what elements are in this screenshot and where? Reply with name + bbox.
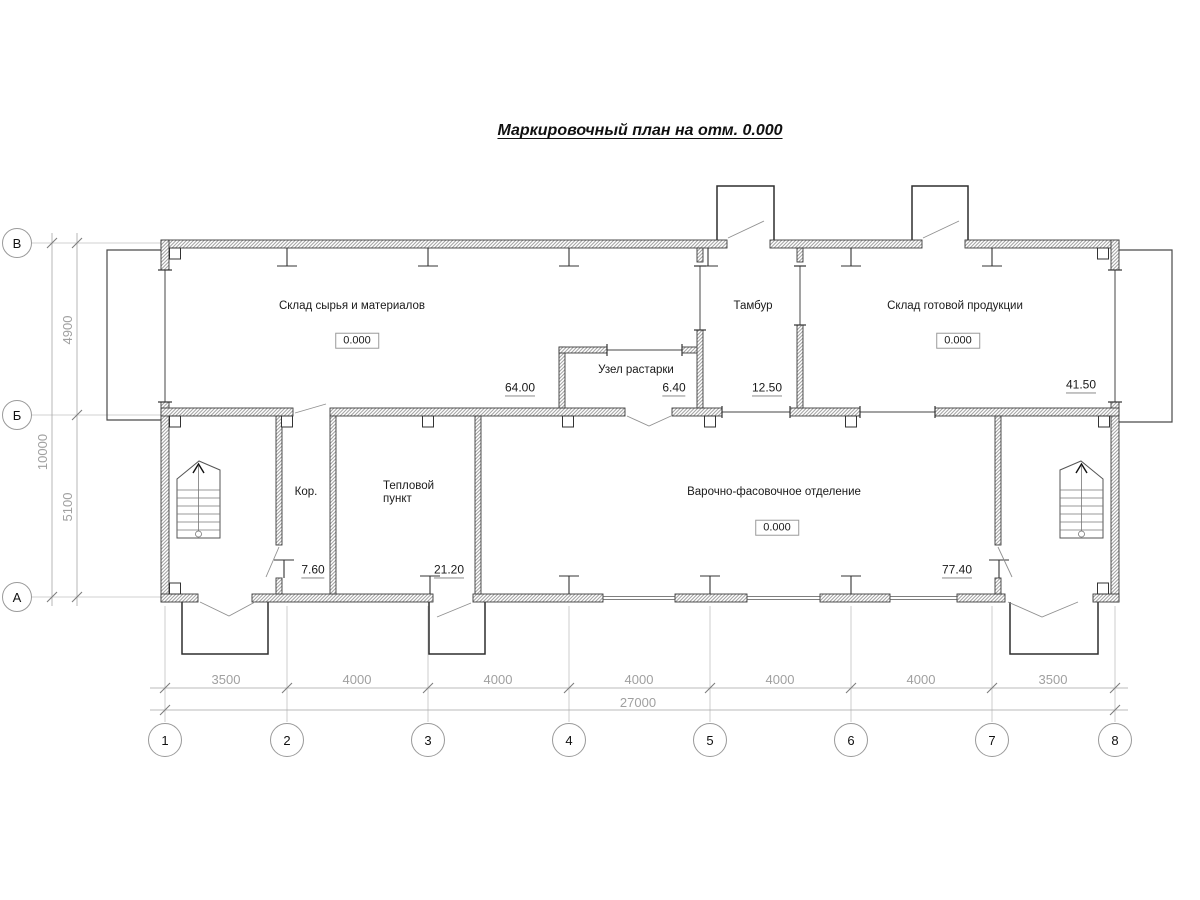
axis-col-6: 6 [834,723,868,757]
area-label-tambur: 12.50 [752,381,782,394]
axis-col-2: 2 [270,723,304,757]
axis-col-5: 5 [693,723,727,757]
dim-bottom-seg-2: 4000 [343,673,372,687]
axis-col-1: 1 [148,723,182,757]
dim-bottom-seg-3: 4000 [484,673,513,687]
axis-col-4: 4 [552,723,586,757]
stair-left [177,461,220,538]
dim-left-total: 10000 [36,434,50,470]
dim-left-4900: 4900 [61,316,75,345]
area-label-sklad-syrya: 64.00 [505,381,535,394]
drawing-canvas: Маркировочный план на отм. 0.000 Склад с… [0,0,1200,900]
porches [182,186,1098,654]
axis-col-3: 3 [411,723,445,757]
windows [603,597,957,600]
extension-lines [31,243,1115,722]
elevation-mark-sklad-syrya: 0.000 [335,335,379,348]
room-label-varochnoe: Варочно-фасовочное отделение [687,486,861,498]
axis-row-B: Б [2,400,32,430]
area-label-sklad-gotovoy: 41.50 [1066,378,1096,391]
axis-row-V: В [2,228,32,258]
elevation-mark-varochnoe: 0.000 [755,522,799,535]
elevation-mark-sklad-gotovoy: 0.000 [936,335,980,348]
area-label-uzel-rastarki: 6.40 [662,381,685,394]
drawing-title: Маркировочный план на отм. 0.000 [497,122,782,140]
dim-bottom-seg-6: 4000 [907,673,936,687]
dim-bottom-seg-1: 3500 [212,673,241,687]
room-label-tambur: Тамбур [733,300,772,312]
axis-col-7: 7 [975,723,1009,757]
dim-left-5100: 5100 [61,493,75,522]
room-label-koridor: Кор. [295,486,318,498]
dim-bottom-seg-7: 3500 [1039,673,1068,687]
room-label-teplopunkt: Тепловой пункт [383,480,449,505]
area-label-koridor: 7.60 [301,563,324,576]
axis-col-8: 8 [1098,723,1132,757]
stair-right [1060,461,1103,538]
room-label-sklad-gotovoy: Склад готовой продукции [887,300,1023,312]
dim-bottom-seg-4: 4000 [625,673,654,687]
area-label-varochnoe: 77.40 [942,563,972,576]
walls [161,240,1119,602]
area-label-teplopunkt: 21.20 [434,563,464,576]
axis-row-A: А [2,582,32,612]
room-label-sklad-syrya: Склад сырья и материалов [279,300,425,312]
side-ramps [107,250,1172,422]
dim-bottom-total: 27000 [620,696,656,710]
room-label-uzel-rastarki: Узел растарки [598,364,674,376]
dim-bottom-seg-5: 4000 [766,673,795,687]
